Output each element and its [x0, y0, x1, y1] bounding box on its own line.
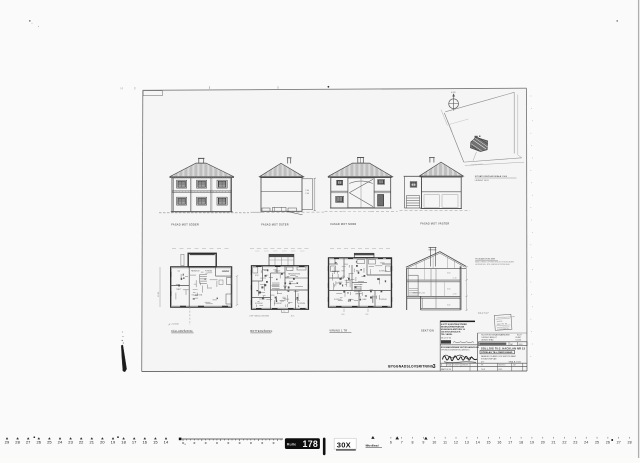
svg-text:20 5: 20 5	[291, 315, 295, 317]
svg-text:12: 12	[454, 441, 458, 445]
svg-text:BOTTENVÅNING: BOTTENVÅNING	[250, 330, 272, 333]
svg-text:28: 28	[15, 440, 20, 445]
svg-text:18: 18	[519, 441, 523, 445]
svg-text:SOVRUM: SOVRUM	[298, 303, 306, 305]
svg-text:16: 16	[142, 440, 147, 445]
svg-text:28: 28	[627, 441, 631, 445]
svg-text:13: 13	[465, 441, 469, 445]
svg-text:+2.60: +2.60	[453, 294, 457, 296]
svg-text:24: 24	[58, 440, 63, 445]
svg-text:9-1106: 9-1106	[516, 339, 521, 341]
svg-text:HÖJDANGIVELSER: HÖJDANGIVELSER	[475, 257, 495, 260]
svg-text:+5.10: +5.10	[453, 278, 457, 280]
svg-text:20: 20	[541, 441, 545, 445]
svg-text:FÖRRÅD: FÖRRÅD	[205, 270, 213, 273]
svg-text:SITUATIONSPLAN: SITUATIONSPLAN	[481, 357, 497, 360]
svg-text:RAPP 96 24: RAPP 96 24	[441, 368, 451, 371]
svg-text:II: II	[134, 86, 136, 90]
svg-text:TVÄTT: TVÄTT	[176, 288, 181, 291]
svg-text:25: 25	[47, 440, 52, 445]
svg-text:19: 19	[111, 440, 116, 445]
svg-text:178: 178	[303, 439, 319, 449]
svg-text:SOVRUM: SOVRUM	[379, 271, 387, 273]
svg-text:PANNRUM: PANNRUM	[191, 270, 200, 273]
svg-text:GARAGE: GARAGE	[222, 270, 230, 273]
svg-text:LGH YTA 143,5 M2 BYA: LGH YTA 143,5 M2 BYA	[249, 314, 269, 317]
svg-text:FÖRSLAG TILL OMBYGGNAD: FÖRSLAG TILL OMBYGGNAD	[481, 351, 513, 354]
svg-text:11: 11	[443, 441, 447, 445]
svg-text:8113: 8113	[499, 369, 503, 371]
svg-text:25: 25	[595, 441, 599, 445]
svg-text:FASAD MOT SÖDER: FASAD MOT SÖDER	[171, 223, 199, 226]
svg-text:HÖJDER ENL. NYB. KARTA I SYSTE: HÖJDER ENL. NYB. KARTA I SYSTEM RH00	[475, 263, 510, 266]
svg-text:3: 3	[433, 364, 436, 370]
svg-text:BYGGNADSLOVSRITNING: BYGGNADSLOVSRITNING	[388, 364, 434, 368]
svg-text:LIDINGÖ STAD: LIDINGÖ STAD	[481, 338, 494, 341]
svg-text:2.50: 2.50	[447, 273, 450, 275]
svg-text:6: 6	[390, 441, 392, 445]
svg-text:KÄLLARVÅNING: KÄLLARVÅNING	[171, 330, 193, 333]
svg-text:08-52 07 60: 08-52 07 60	[441, 337, 451, 339]
svg-text:21: 21	[89, 440, 94, 445]
svg-text:14: 14	[476, 441, 480, 445]
svg-text:SOLLJUS 70:2, HACKLAN NR 15: SOLLJUS 70:2, HACKLAN NR 15	[481, 347, 526, 350]
svg-text:15: 15	[153, 440, 158, 445]
svg-text:9: 9	[422, 441, 424, 445]
svg-text:SITUATIONSPLAN SKALA 1:500: SITUATIONSPLAN SKALA 1:500	[475, 175, 508, 178]
svg-text:22: 22	[562, 441, 566, 445]
svg-text:24: 24	[584, 441, 588, 445]
svg-text:911747: 911747	[478, 311, 489, 315]
svg-text:70-21: 70-21	[481, 369, 485, 371]
svg-text:19: 19	[530, 441, 534, 445]
svg-text:915: 915	[366, 314, 369, 316]
svg-text:2.50: 2.50	[447, 289, 450, 291]
svg-text:10: 10	[184, 444, 186, 446]
svg-text:7: 7	[401, 441, 403, 445]
svg-text:10: 10	[432, 441, 436, 445]
svg-text:FASAD MOT NORR: FASAD MOT NORR	[331, 223, 357, 226]
svg-text:17: 17	[508, 441, 512, 445]
svg-text:Mikrofilmad: Mikrofilmad	[366, 445, 379, 447]
svg-text:KONSTR: KONSTR	[453, 365, 460, 367]
svg-text:VÅNING 1 TR: VÅNING 1 TR	[329, 329, 347, 332]
svg-text:13 300: 13 300	[158, 292, 160, 297]
svg-text:+ 14 100: + 14 100	[171, 324, 180, 326]
svg-text:15: 15	[486, 441, 490, 445]
svg-text:HALL: HALL	[363, 298, 367, 301]
svg-text:SOVRUM: SOVRUM	[332, 271, 340, 273]
svg-text:BYGGNADSFIRMAN VIKTOR HANSON A: BYGGNADSFIRMAN VIKTOR HANSON AB	[441, 346, 479, 349]
svg-text:20: 20	[100, 440, 105, 445]
svg-text:27: 27	[26, 440, 31, 445]
svg-text:22: 22	[79, 440, 84, 445]
svg-text:26: 26	[606, 441, 610, 445]
svg-text:Rulle: Rulle	[287, 442, 297, 446]
svg-text:SEKTION: SEKTION	[421, 329, 434, 332]
svg-text:FASAD MOT VÄSTER: FASAD MOT VÄSTER	[420, 223, 449, 226]
svg-text:SKALA 1:100: SKALA 1:100	[509, 360, 522, 363]
svg-text:SOVRUM: SOVRUM	[255, 303, 263, 305]
svg-text:30X: 30X	[337, 440, 351, 449]
svg-text:23: 23	[68, 440, 73, 445]
svg-text:VARDAGSRUM: VARDAGSRUM	[288, 273, 301, 276]
svg-text:27: 27	[617, 441, 621, 445]
svg-text:21: 21	[552, 441, 556, 445]
svg-text:8: 8	[412, 441, 414, 445]
svg-text:TEL VÄXEL: TEL VÄXEL	[441, 333, 453, 336]
svg-text:16: 16	[497, 441, 501, 445]
svg-text:29: 29	[5, 440, 10, 445]
svg-text:17: 17	[132, 440, 137, 445]
svg-text:14: 14	[164, 440, 169, 445]
svg-text:SOVRUM: SOVRUM	[379, 299, 387, 301]
svg-text:FASAD MOT ÖSTER: FASAD MOT ÖSTER	[261, 223, 288, 226]
svg-text:23: 23	[573, 441, 577, 445]
svg-text:LIDINGÖ 76:31: LIDINGÖ 76:31	[475, 179, 490, 182]
svg-text:26: 26	[36, 440, 41, 445]
svg-text:18: 18	[121, 440, 126, 445]
svg-text:2.25: 2.25	[447, 305, 450, 307]
svg-text:SOVRUM: SOVRUM	[274, 303, 282, 305]
svg-text:610: 610	[342, 314, 345, 316]
